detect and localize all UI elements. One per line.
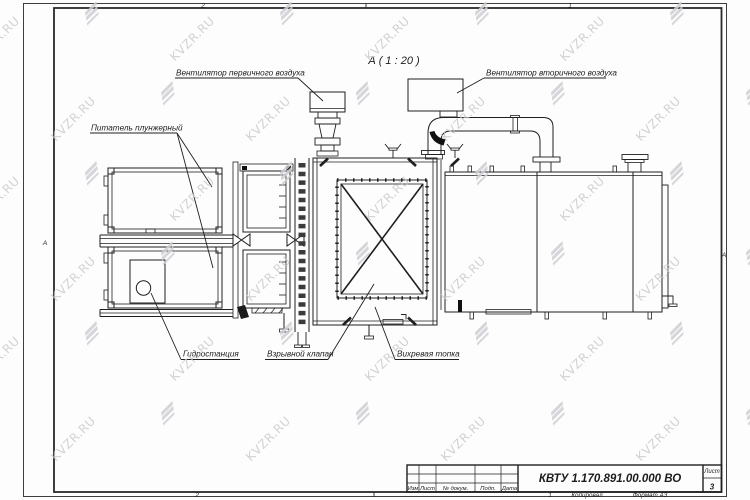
callout-furnace-label: Вихревая топка [397,350,460,359]
vortex-furnace [313,144,441,339]
callout-secondary-fan-label: Вентилятор вторичного воздуха [486,69,617,78]
plunger-feeder [100,168,233,317]
copied-label: Копировал [571,492,603,499]
title-block-header-doc: № докум. [443,486,469,492]
drawing-sheet: 2 1 2 1 А А А ( 1 : 20 ) [0,0,750,500]
primary-air-fan [310,92,345,151]
zone-top-right: 1 [568,2,572,9]
sheet-label: Лист [703,469,719,475]
title-block-header-podp: Подп. [480,486,495,492]
zone-side-left: А [42,240,47,247]
sheet-frame [24,4,727,498]
hydraulic-station [130,260,165,303]
callouts: Вентилятор первичного воздуха Вентилятор… [90,69,617,360]
chain-elevator [295,158,310,348]
view-title: А ( 1 : 20 ) [367,55,420,67]
callout-furnace: Вихревая топка [375,307,460,360]
callout-feeder-label: Питатель плунжерный [91,124,183,133]
air-duct [422,116,561,163]
zone-bottom-right: 1 [548,492,552,499]
zone-side-right: А [721,252,726,259]
zone-bottom-left: 2 [194,492,199,499]
callout-hydraulic-label: Гидростанция [183,350,239,359]
secondary-air-fan [408,79,463,117]
callout-secondary-fan: Вентилятор вторичного воздуха [457,69,617,94]
format-label: Формат А3 [633,492,668,499]
drawing-svg: 2 1 2 1 А А А ( 1 : 20 ) [0,0,750,500]
callout-primary-fan: Вентилятор первичного воздуха [175,69,323,102]
sheet-number: 3 [710,483,715,492]
title-block-header-data: Дата [501,486,518,492]
callout-primary-fan-label: Вентилятор первичного воздуха [176,69,305,78]
zone-top-left: 2 [200,2,205,9]
feed-conveyor [233,162,304,332]
boiler-body [445,144,677,319]
title-block: Изм Лист № докум. Подп. Дата КВТУ 1.170.… [407,465,722,499]
callout-explosion-valve-label: Взрывной клапан [267,350,334,359]
title-block-header-izm: Изм [408,486,419,492]
title-block-header-list: Лист [419,486,435,492]
document-number: КВТУ 1.170.891.00.000 ВО [539,473,681,485]
